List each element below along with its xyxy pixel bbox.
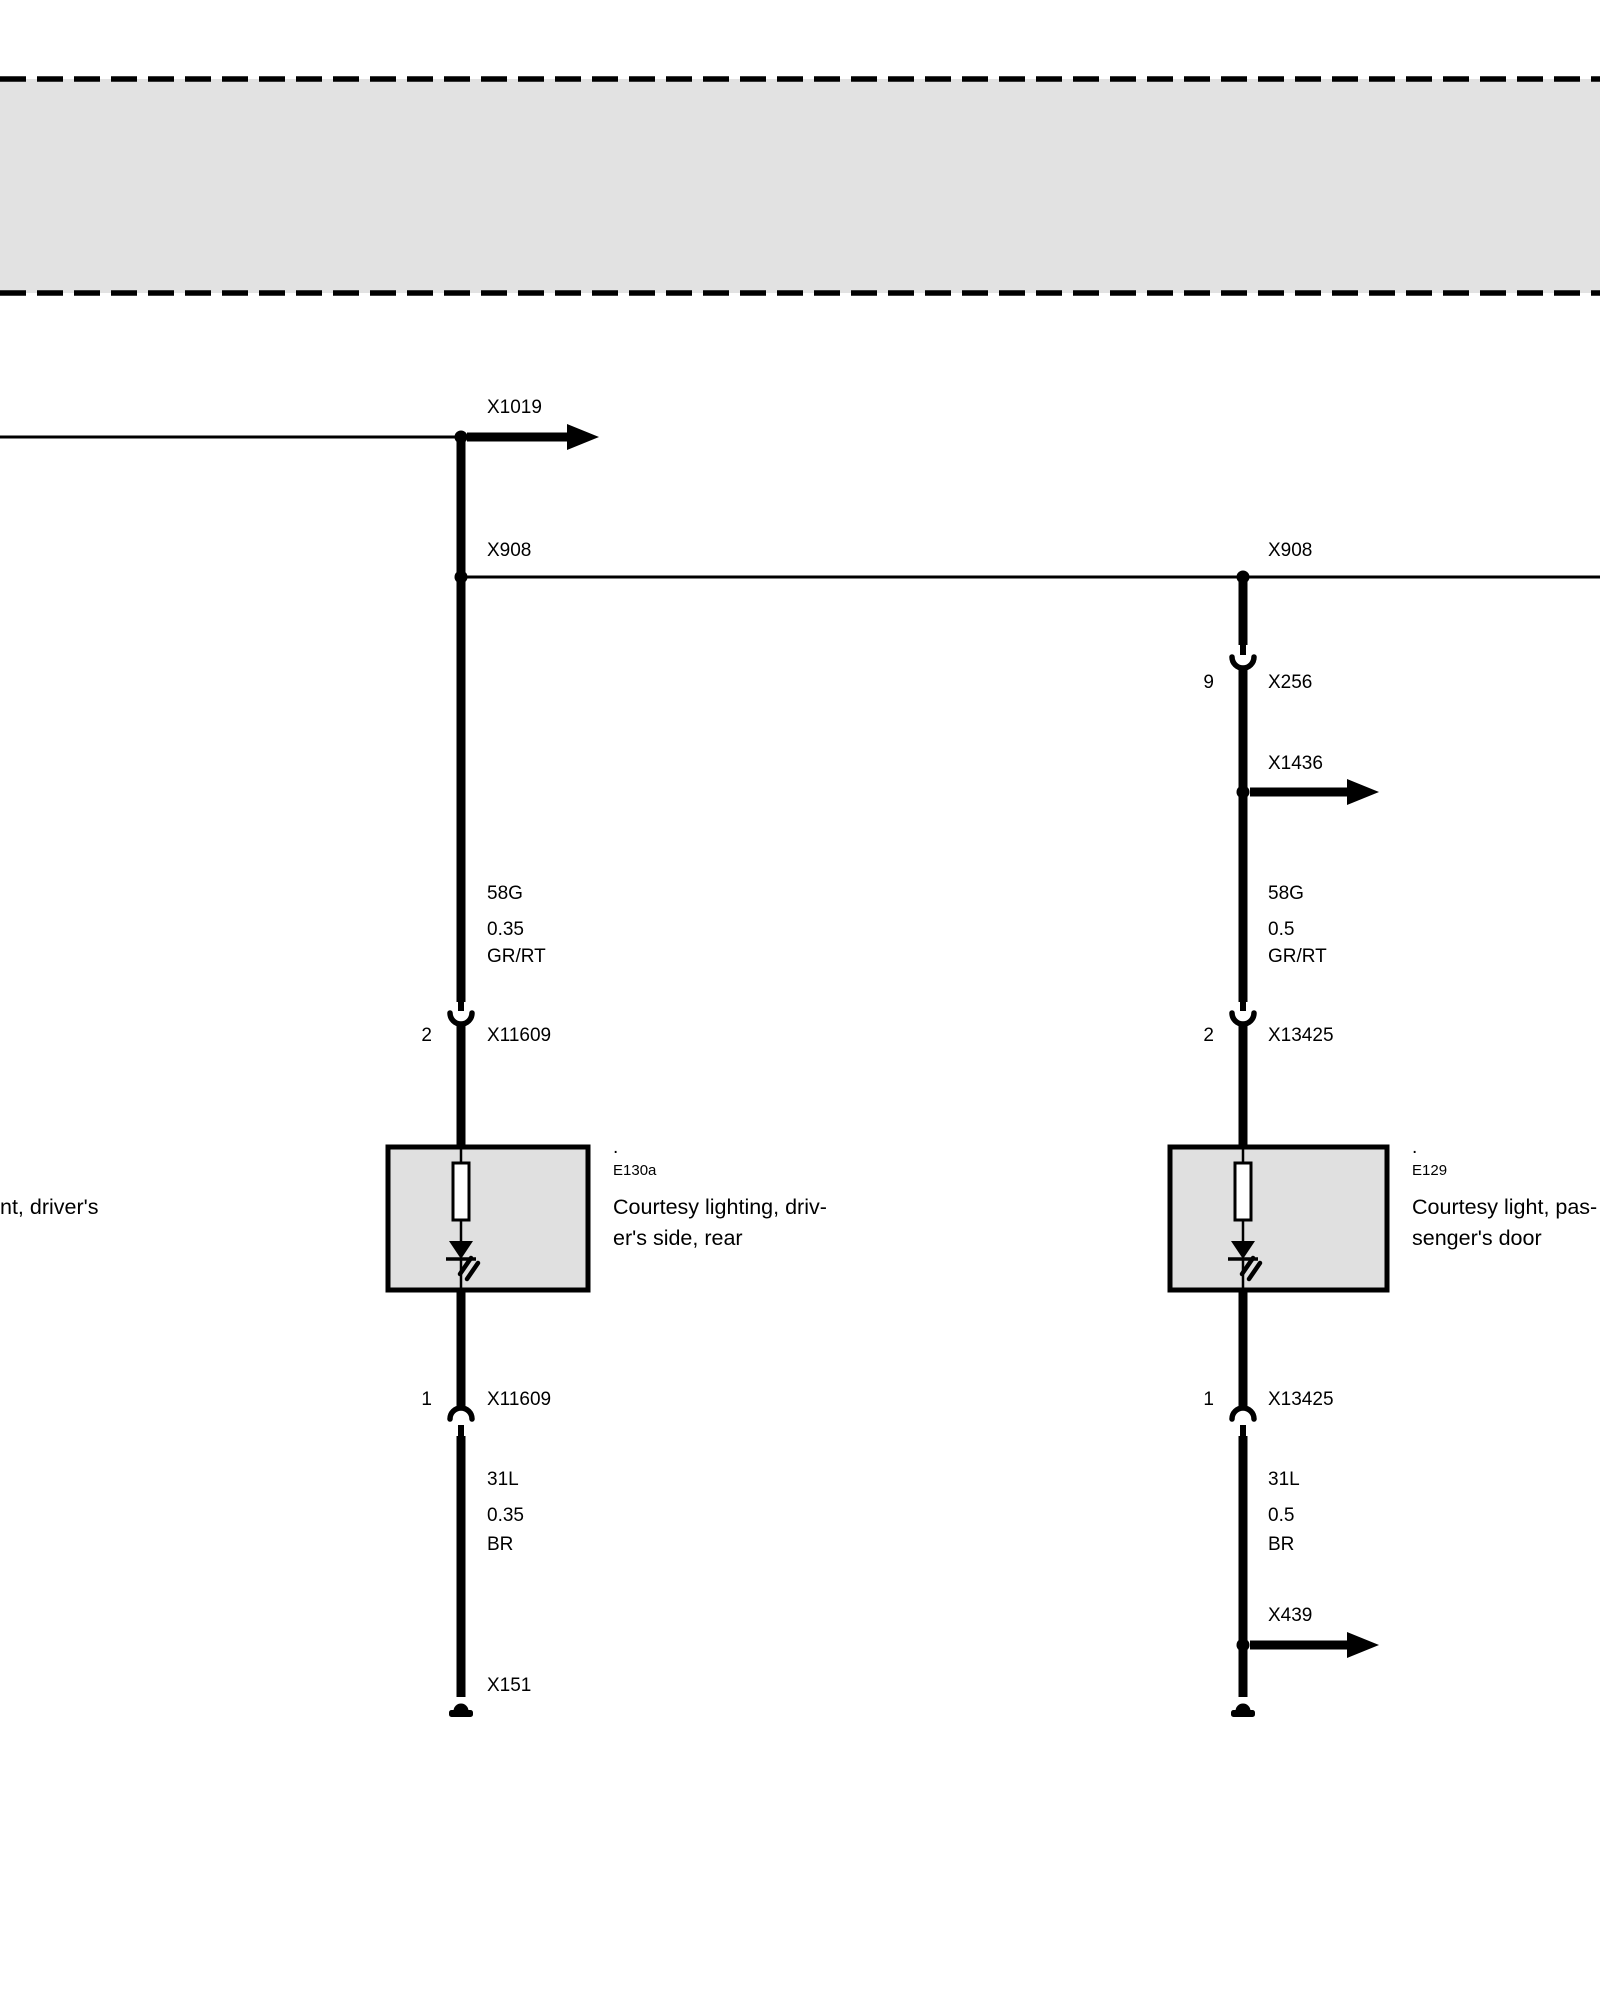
x13425-pin2-number: 2 — [1174, 1026, 1214, 1045]
bulb-filament-icon — [1235, 1163, 1251, 1220]
x13425-pin1-number: 1 — [1174, 1390, 1214, 1409]
connector-x13425-pin2-icon — [1232, 1000, 1254, 1024]
bulb-filament-icon — [453, 1163, 469, 1220]
x1436-node — [1237, 786, 1250, 799]
right-wire-color-label: GR/RT — [1268, 947, 1327, 966]
x1436-label: X1436 — [1268, 754, 1323, 773]
e129-description-line2: senger's door — [1412, 1228, 1542, 1250]
x151-label: X151 — [487, 1676, 531, 1695]
x11609-pin2-number: 2 — [392, 1026, 432, 1045]
e129-description-line1: Courtesy light, pas- — [1412, 1197, 1597, 1219]
e129-id-label: E129 — [1412, 1163, 1447, 1178]
left-wire-color-label: GR/RT — [487, 947, 546, 966]
cutoff-left-description: nt, driver's — [0, 1197, 99, 1219]
x11609-pin1-number: 1 — [392, 1390, 432, 1409]
x439-arrow — [1250, 1632, 1379, 1658]
e130a-description-line1: Courtesy lighting, driv- — [613, 1197, 827, 1219]
connector-x256-pin9-icon — [1232, 644, 1254, 668]
left-ground-gauge-label: 0.35 — [487, 1506, 524, 1525]
x1436-arrow — [1250, 779, 1379, 805]
e130a-dot: . — [613, 1138, 618, 1157]
x439-label: X439 — [1268, 1606, 1312, 1625]
legend-band — [0, 79, 1600, 293]
ground-right-icon — [1231, 1704, 1255, 1717]
lamp-e130a-box — [388, 1147, 588, 1290]
x11609-label-bottom: X11609 — [487, 1390, 551, 1409]
x1019-arrow — [467, 424, 599, 450]
x1019-label: X1019 — [487, 398, 542, 417]
x256-label: X256 — [1268, 673, 1312, 692]
left-ground-circuit-label: 31L — [487, 1470, 519, 1489]
right-ground-circuit-label: 31L — [1268, 1470, 1300, 1489]
right-wire-gauge-label: 0.5 — [1268, 920, 1294, 939]
right-wire-circuit-label: 58G — [1268, 884, 1304, 903]
left-ground-color-label: BR — [487, 1535, 513, 1554]
left-wire-gauge-label: 0.35 — [487, 920, 524, 939]
connector-x11609-pin2-icon — [450, 1000, 472, 1024]
connector-x13425-pin1-icon — [1232, 1408, 1254, 1436]
x13425-label-bottom: X13425 — [1268, 1390, 1334, 1409]
x439-node — [1237, 1639, 1250, 1652]
right-ground-color-label: BR — [1268, 1535, 1294, 1554]
ground-x151-icon — [449, 1704, 473, 1717]
wiring-diagram-page: nt, driver's X1019 X908 58G 0.35 GR/RT 2… — [0, 0, 1600, 2000]
e130a-description-line2: er's side, rear — [613, 1228, 743, 1250]
x908-label-right: X908 — [1268, 541, 1312, 560]
x11609-label-top: X11609 — [487, 1026, 551, 1045]
e130a-id-label: E130a — [613, 1163, 656, 1178]
lamp-e129-box — [1170, 1147, 1387, 1290]
x256-pin9-number: 9 — [1174, 673, 1214, 692]
x13425-label-top: X13425 — [1268, 1026, 1334, 1045]
e129-dot: . — [1412, 1138, 1417, 1157]
left-wire-circuit-label: 58G — [487, 884, 523, 903]
x908-label-left: X908 — [487, 541, 531, 560]
right-ground-gauge-label: 0.5 — [1268, 1506, 1294, 1525]
connector-x11609-pin1-icon — [450, 1408, 472, 1436]
wiring-diagram-canvas — [0, 0, 1600, 2000]
